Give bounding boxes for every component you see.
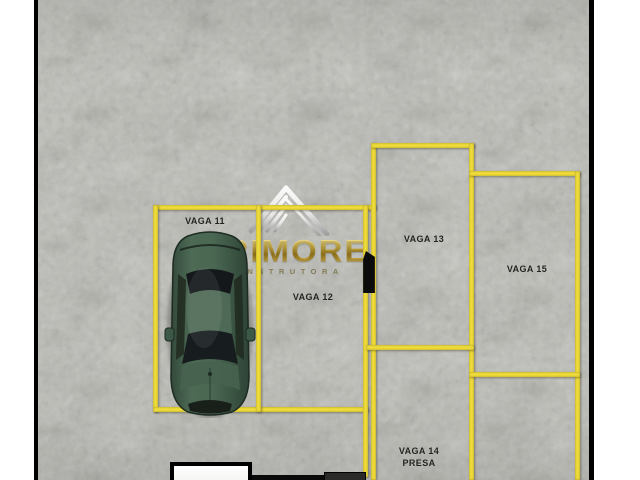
stairwell-outline bbox=[170, 462, 252, 480]
door-symbol bbox=[362, 251, 376, 293]
space-label-vaga-14: VAGA 14 bbox=[399, 446, 439, 456]
space-label-vaga-15: VAGA 15 bbox=[507, 264, 547, 274]
space-label-vaga-13: VAGA 13 bbox=[404, 234, 444, 244]
space-label-vaga-12: VAGA 12 bbox=[293, 292, 333, 302]
parking-line bbox=[371, 143, 376, 480]
dark-structure bbox=[324, 472, 366, 480]
space-label-vaga-11: VAGA 11 bbox=[185, 216, 225, 226]
parking-plan-image: PRIMORE CONSTRUTORA bbox=[0, 0, 640, 480]
car-top-view bbox=[164, 228, 256, 418]
parking-line bbox=[363, 205, 368, 477]
parking-line bbox=[153, 205, 376, 210]
parking-line bbox=[371, 143, 474, 148]
parking-line bbox=[469, 372, 580, 377]
parking-line bbox=[469, 171, 580, 176]
parking-line bbox=[153, 205, 158, 412]
parking-line bbox=[366, 345, 474, 350]
wall-segment bbox=[252, 475, 324, 480]
right-border-line bbox=[589, 0, 594, 480]
parking-line bbox=[575, 171, 580, 480]
space-sublabel-vaga-14-presa: PRESA bbox=[402, 458, 435, 468]
parking-line bbox=[469, 143, 474, 480]
parking-line bbox=[256, 205, 261, 412]
